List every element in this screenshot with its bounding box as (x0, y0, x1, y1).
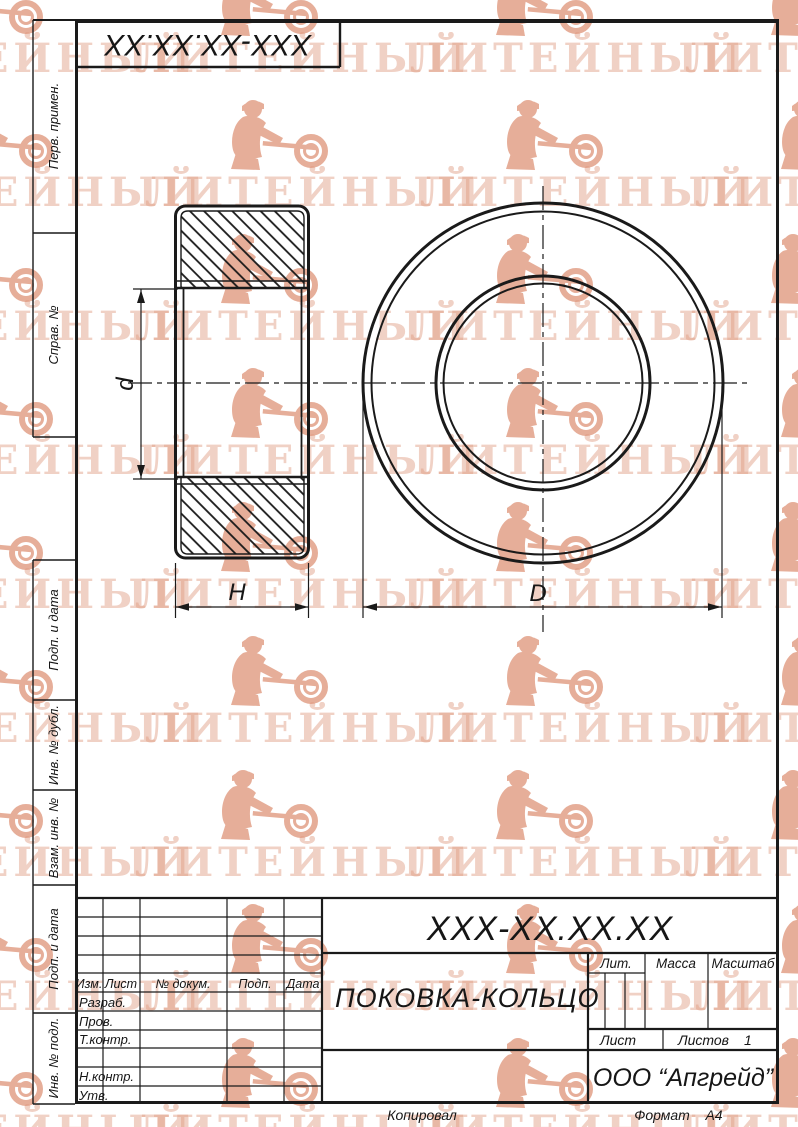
format-label: Формат (634, 1107, 690, 1123)
sign-row-prov: Пров. (79, 1014, 113, 1029)
watermark-text: ЛИТЕЙНЫЙ (685, 568, 798, 618)
watermark-figure (0, 0, 40, 36)
lit-label: Лит. (599, 956, 632, 971)
left-label-podp-data-2: Подп. и дата (46, 908, 61, 989)
stamp-designation: XXX-XX.XX.XX (104, 28, 313, 61)
watermark-figure (496, 1038, 590, 1108)
watermark-figure (496, 770, 590, 840)
watermark-figure (771, 770, 798, 840)
watermark-text: ЛИТЕЙНЫЙ (695, 434, 798, 484)
watermark-figure (781, 368, 798, 438)
watermark-figure (496, 0, 590, 36)
watermark-figure (0, 368, 50, 438)
watermark-figure (506, 636, 600, 706)
part-name: ПОКОВКА-КОЛЬЦО (335, 983, 600, 1013)
watermark-figure (0, 1038, 40, 1108)
watermark-text: ЛИТЕЙНЫЙ (685, 32, 798, 82)
left-label-podp-data-1: Подп. и дата (46, 589, 61, 670)
watermark-text: ЛИТЕЙНЫЙ (685, 300, 798, 350)
rev-header-list: Лист (104, 977, 137, 991)
watermark-figure (771, 1038, 798, 1108)
watermark-figure (0, 234, 40, 304)
mass-label: Масса (656, 956, 696, 971)
dim-outer-diameter-label: D (529, 580, 546, 607)
sign-row-tkontr: Т.контр. (79, 1032, 131, 1047)
sign-row-nkontr: Н.контр. (79, 1069, 134, 1084)
left-label-inv-podl: Инв. № подл. (46, 1018, 61, 1099)
sign-row-utv: Утв. (78, 1088, 109, 1103)
designation: XXX-XX.XX.XX (426, 910, 674, 948)
watermark-figure (781, 904, 798, 974)
dim-height-label: H (228, 579, 246, 606)
watermark-text: ЛИТЕЙНЫЙ (685, 1104, 798, 1127)
sign-row-razrab: Разраб. (79, 995, 126, 1010)
sheets-label: Листов (677, 1032, 729, 1048)
scale-label: Масштаб (711, 956, 774, 971)
drawing-sheet: ЛИТЕЙНЫЙЛИТЕЙНЫЙЛИТЕЙНЫЙЛИТЕЙНЫЙЛИТЕЙНЫЙ… (0, 0, 798, 1127)
sheets-value: 1 (744, 1032, 752, 1048)
watermark-figure (0, 100, 50, 170)
rev-header-data: Дата (285, 977, 320, 991)
watermark-figure (771, 502, 798, 572)
copied-label: Копировал (387, 1107, 457, 1123)
watermark-figure (0, 502, 40, 572)
watermark-figure (0, 770, 40, 840)
watermark-figure (231, 368, 325, 438)
watermark-figure (506, 100, 600, 170)
section-hatch-bottom (181, 477, 304, 554)
watermark-figure (506, 368, 600, 438)
watermark-figure (0, 636, 50, 706)
dim-inner-diameter-label: d (112, 377, 139, 391)
rev-header-dokum: № докум. (155, 977, 210, 991)
section-view (176, 206, 309, 558)
rev-header-izm: Изм. (76, 977, 103, 991)
watermark-figure (781, 100, 798, 170)
left-label-inv-dubl: Инв. № дубл. (46, 705, 61, 785)
watermark-figure (231, 100, 325, 170)
left-label-perv-primen: Перв. примен. (46, 83, 61, 169)
left-label-sprav-no: Справ. № (46, 305, 61, 364)
watermark-text: ЛИТЕЙНЫЙ (695, 970, 798, 1020)
company-name: ООО “Апгрейд” (593, 1064, 775, 1092)
section-hatch-top (181, 211, 304, 288)
watermark-figure (231, 904, 325, 974)
watermark-figure (781, 636, 798, 706)
watermark-figure (771, 234, 798, 304)
left-column-labels: Перв. примен. Справ. № Подп. и дата Инв.… (46, 83, 61, 1099)
rev-header-podp: Подп. (238, 977, 271, 991)
watermark-text: ЛИТЕЙНЫЙ (695, 702, 798, 752)
watermark-figure (0, 904, 50, 974)
watermark-text: ЛИТЕЙНЫЙ (685, 836, 798, 886)
watermark-text: ЛИТЕЙНЫЙ (695, 166, 798, 216)
format-value: A4 (704, 1107, 722, 1123)
sheet-label: Лист (599, 1032, 636, 1048)
left-label-vzam-inv: Взам. инв. № (46, 798, 61, 878)
top-designation-stamp: XXX-XX.XX.XX (75, 20, 340, 67)
watermark-figure (771, 0, 798, 36)
watermark-figure (221, 770, 315, 840)
watermark-figure (231, 636, 325, 706)
